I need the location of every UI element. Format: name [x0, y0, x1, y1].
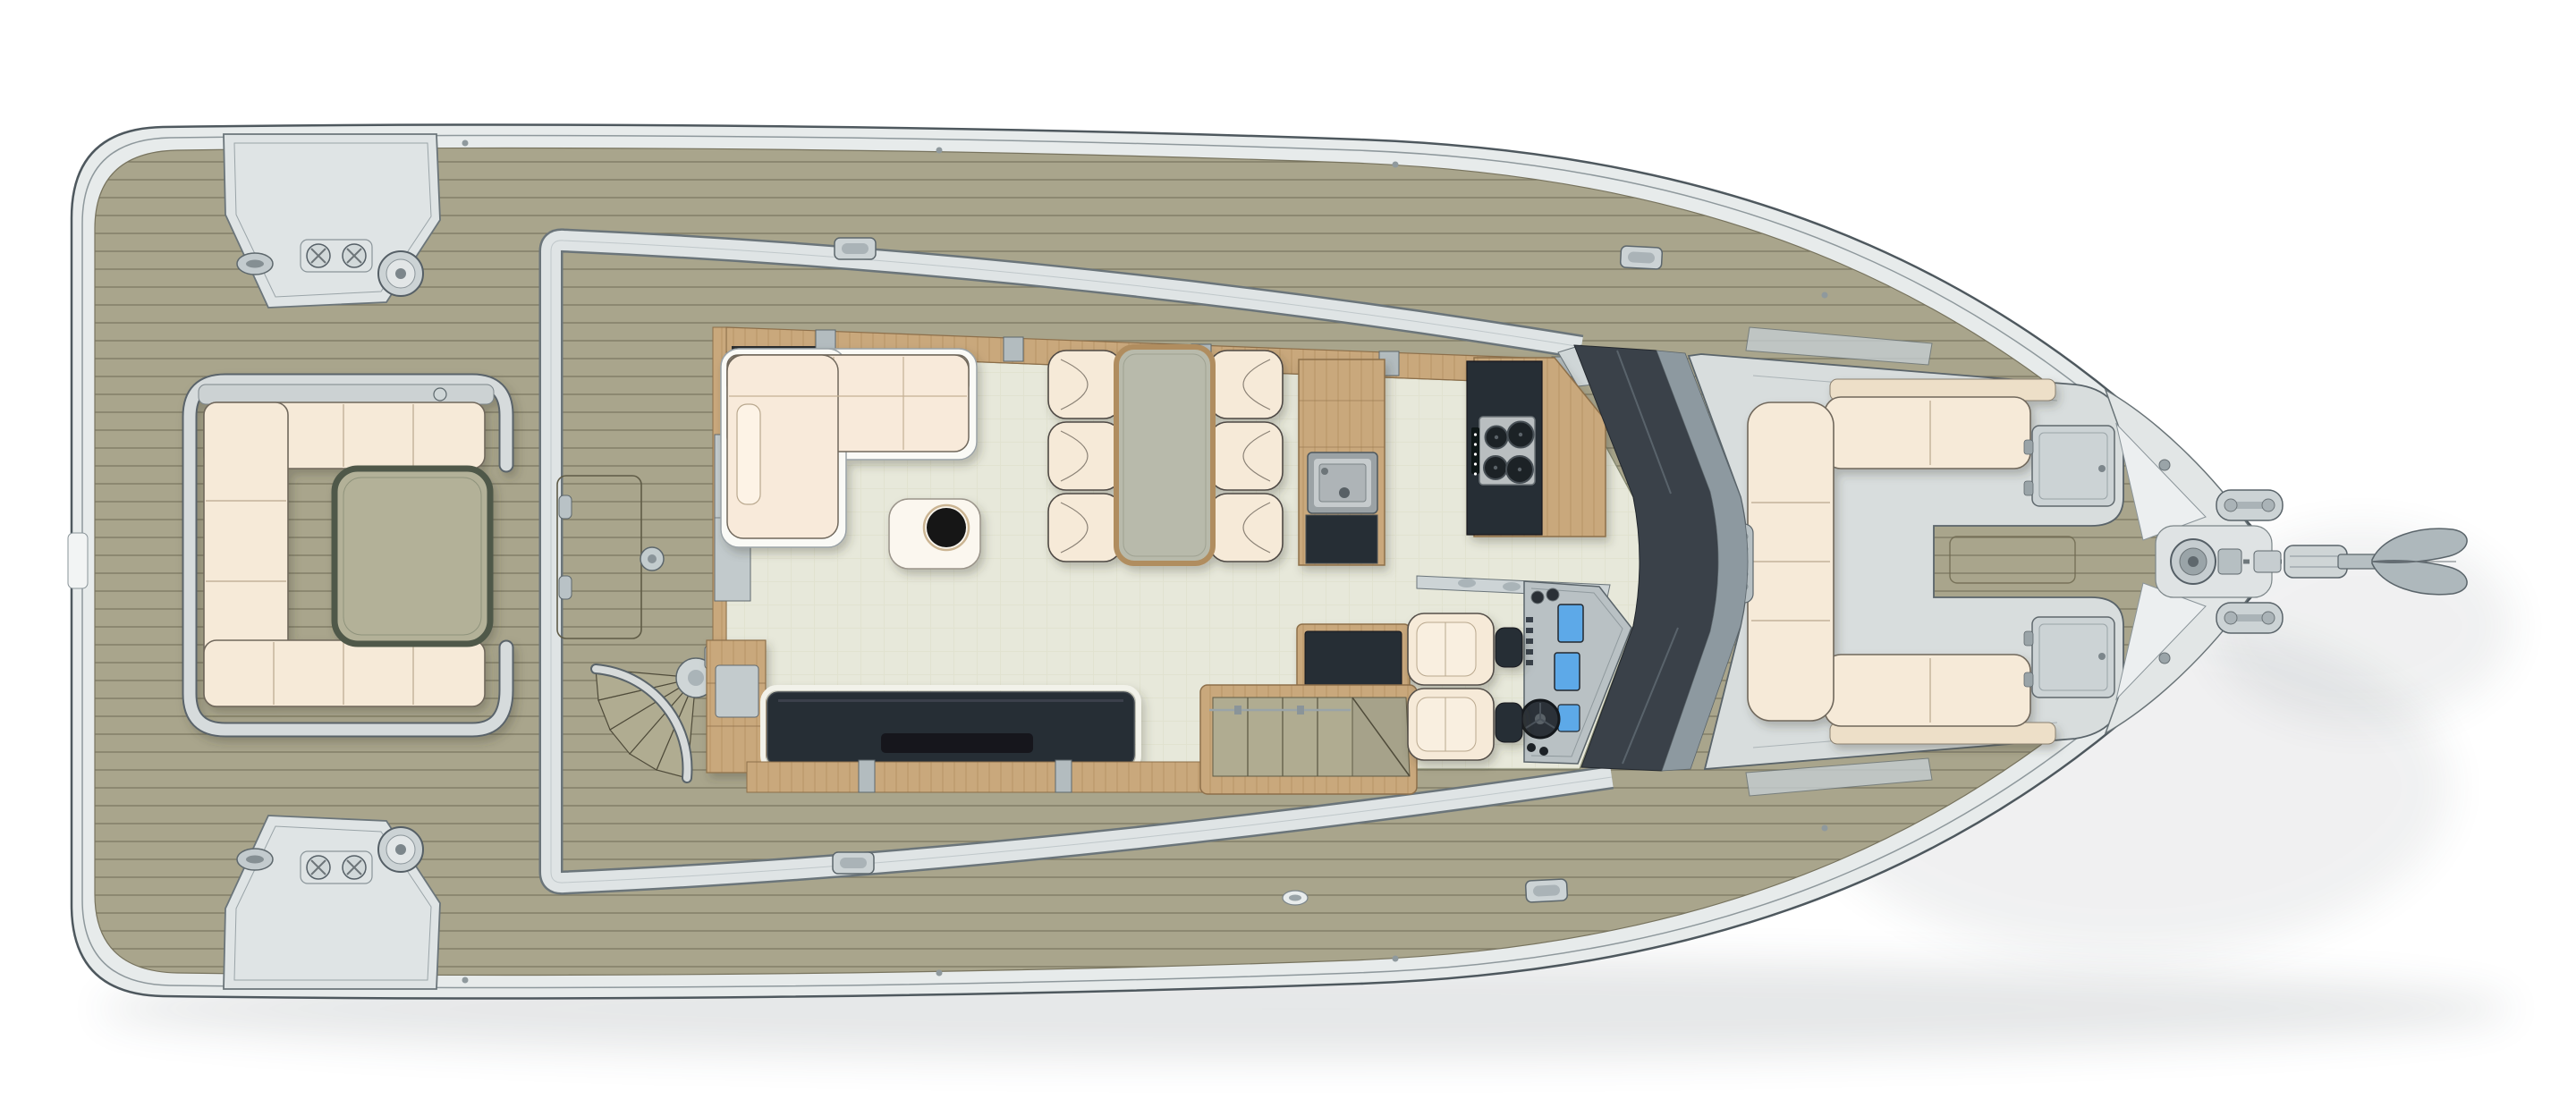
rail-cleat — [1620, 246, 1662, 269]
galley-sink-unit — [1299, 359, 1385, 565]
rail-cleat — [835, 238, 876, 259]
bow-bench-top — [1825, 397, 2030, 469]
aft-lounge — [190, 381, 506, 730]
mooring-station-port — [224, 134, 440, 308]
cabinet-appliance — [716, 665, 758, 717]
lounge-frame-fitting — [434, 388, 446, 401]
dining-chair — [1209, 351, 1283, 418]
mooring-station-starboard — [224, 816, 440, 989]
mfd-screen — [1558, 705, 1580, 731]
dining-chair — [1209, 494, 1283, 562]
sofa-armrest — [737, 404, 760, 504]
deck-fitting — [2159, 653, 2170, 664]
gauge — [1546, 588, 1559, 601]
table-bowl — [927, 508, 966, 547]
seat-armrest — [1496, 628, 1522, 667]
bow-bench-bottom — [1825, 655, 2030, 726]
foredeck-cleat — [2216, 603, 2283, 633]
chain-gypsy — [2218, 549, 2241, 574]
dining-set — [1048, 347, 1283, 563]
transom-notch — [68, 533, 88, 588]
dining-table — [1116, 347, 1213, 563]
sink-drain — [1339, 487, 1350, 498]
dining-chair — [1048, 351, 1122, 418]
dining-chair — [1209, 422, 1283, 490]
deck-fitting — [2159, 460, 2170, 470]
foredeck-cleat — [2216, 490, 2283, 520]
companionway-stairs — [1200, 685, 1417, 794]
aft-cockpit-table — [335, 469, 490, 644]
gauge — [1531, 591, 1544, 604]
mfd-screen — [1555, 653, 1580, 690]
mfd-screen — [1558, 604, 1583, 642]
deck-plan-svg — [0, 0, 2576, 1116]
tv-console — [767, 692, 1134, 765]
chain-stopper — [2254, 551, 2281, 572]
faucet — [1321, 468, 1328, 475]
bow-storage-hatch — [2024, 426, 2114, 506]
tv-slot — [881, 733, 1033, 753]
rail-cleat — [833, 852, 874, 874]
aft-lounge-cushion-bottom — [204, 640, 485, 706]
dining-chair — [1048, 422, 1122, 490]
deck-plan-figure — [0, 0, 2576, 1116]
coffee-table — [889, 499, 980, 569]
rail-cleat — [1525, 879, 1567, 902]
seat-armrest — [1496, 703, 1522, 742]
bow-storage-hatch — [2024, 617, 2114, 697]
salon-bottom-sill — [747, 760, 1203, 792]
salon — [707, 327, 1640, 794]
dining-chair — [1048, 494, 1122, 562]
